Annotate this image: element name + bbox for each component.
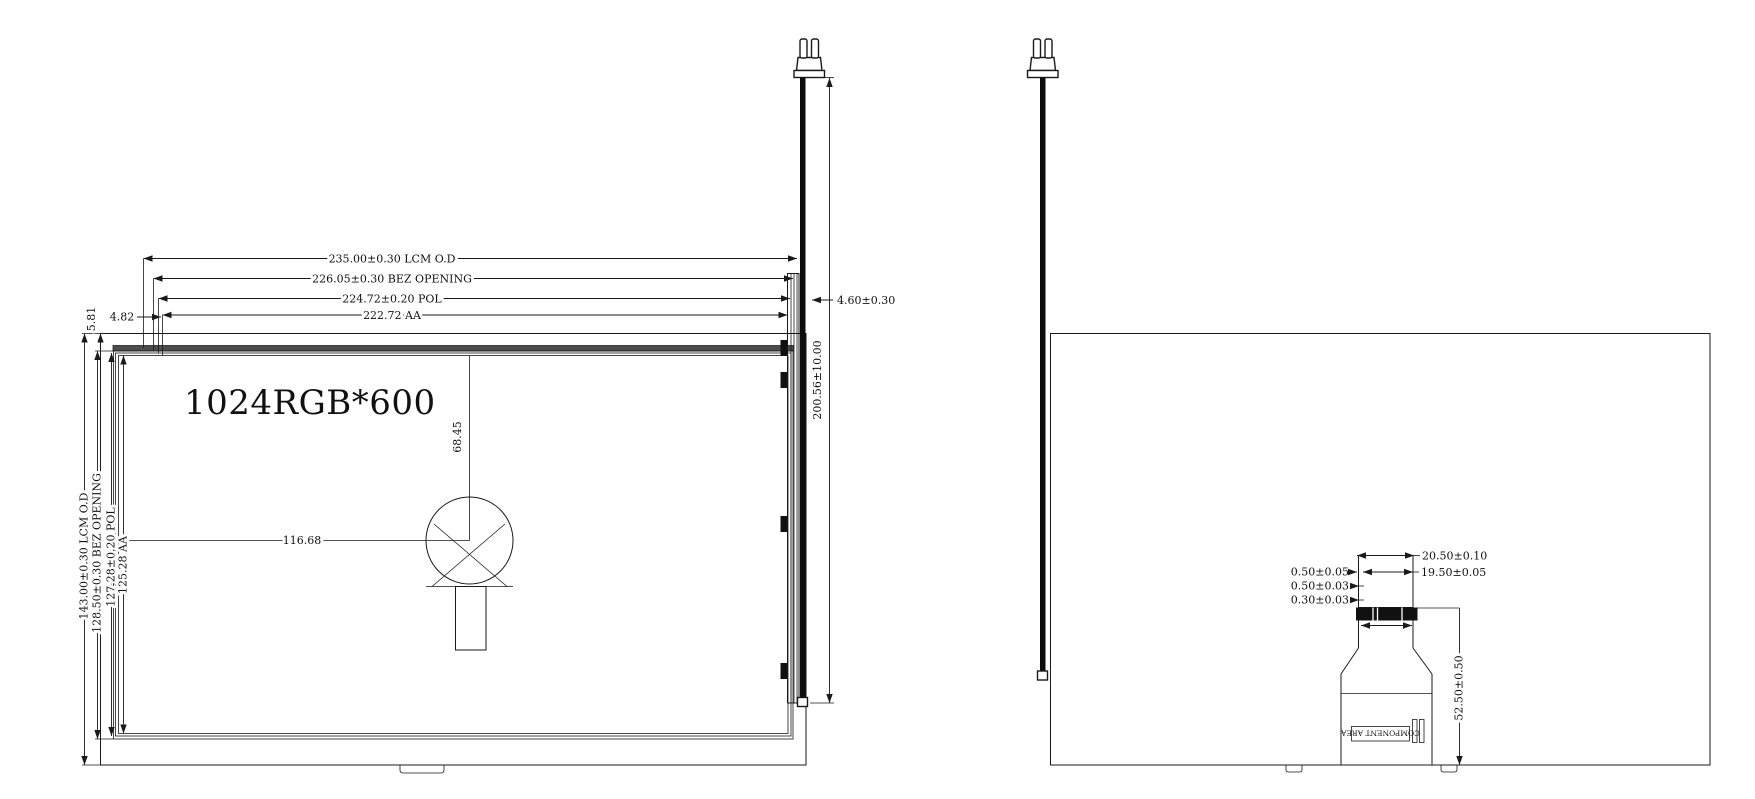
side-component-mark — [781, 372, 788, 388]
backlight-connector-back — [1028, 39, 1059, 78]
front-top-dimensions: 235.00±0.30 LCM O.D 226.05±0.30 BEZ OPEN… — [144, 253, 798, 356]
cable-end-crimp — [798, 698, 808, 707]
front-bezel-band — [113, 346, 794, 352]
dim-height-bez: 128.50±0.30 BEZ OPENING — [91, 473, 104, 633]
cable-end-crimp-back — [1038, 671, 1048, 680]
dim-height-aa: 125.28 AA — [117, 535, 130, 594]
dim-height-lcm: 143.00±0.30 LCM O.D — [78, 492, 91, 619]
dim-cable-length: 200.56±10.00 — [811, 340, 824, 419]
side-component-mark — [781, 340, 788, 356]
front-view: 1024RGB*600 68.45 116.68 235.00±0.30 LCM… — [78, 253, 807, 774]
side-component-mark — [781, 516, 788, 532]
dim-top-offset-1: 5.81 — [85, 307, 98, 332]
dim-fpc-length: 52.50±0.50 — [1453, 655, 1466, 720]
dim-fpc-contact-width: 19.50±0.05 — [1421, 566, 1486, 579]
backlight-cable-back — [1040, 78, 1046, 672]
backlight-cable — [800, 78, 806, 698]
back-bottom-tab — [1441, 766, 1457, 773]
dim-width-pol: 224.72±0.20 POL — [342, 293, 442, 306]
dim-top-offset-2: 4.82 — [110, 311, 135, 324]
component-area-label: COMPONENT AREA — [1341, 729, 1420, 738]
side-view: 4.60±0.30 200.56±10.00 — [781, 39, 896, 707]
back-bottom-tab — [1286, 766, 1302, 773]
dim-thickness: 4.60±0.30 — [837, 294, 895, 307]
dim-fpc-offset-3: 0.30±0.03 — [1291, 594, 1349, 607]
backlight-connector — [794, 39, 825, 78]
back-outline — [1051, 334, 1711, 766]
fpc-tail: COMPONENT AREA — [1341, 556, 1432, 766]
dim-center-horizontal: 116.68 — [283, 534, 322, 547]
mechanical-drawing-page: 1024RGB*600 68.45 116.68 235.00±0.30 LCM… — [0, 0, 1755, 799]
dim-fpc-outer-width: 20.50±0.10 — [1422, 550, 1487, 563]
dim-width-aa: 222.72 AA — [363, 309, 422, 322]
dim-fpc-offset-2: 0.50±0.03 — [1291, 580, 1349, 593]
dim-width-lcm: 235.00±0.30 LCM O.D — [329, 253, 456, 266]
side-component-mark — [781, 663, 788, 679]
center-mark-stem — [456, 587, 487, 651]
dim-width-bez: 226.05±0.30 BEZ OPENING — [312, 273, 472, 286]
panel-resolution-label: 1024RGB*600 — [184, 383, 436, 423]
dim-fpc-offset-1: 0.50±0.05 — [1291, 566, 1349, 579]
fpc-contact-bar — [1356, 608, 1418, 621]
back-view: COMPONENT AREA 20.50±0.10 19.50±0.05 0.5… — [1028, 39, 1711, 772]
front-left-dimensions: 143.00±0.30 LCM O.D 128.50±0.30 BEZ OPEN… — [78, 307, 162, 765]
lcd-module-drawing: 1024RGB*600 68.45 116.68 235.00±0.30 LCM… — [0, 0, 1755, 799]
dim-center-vertical: 68.45 — [451, 421, 464, 453]
front-bottom-tab — [400, 766, 444, 774]
